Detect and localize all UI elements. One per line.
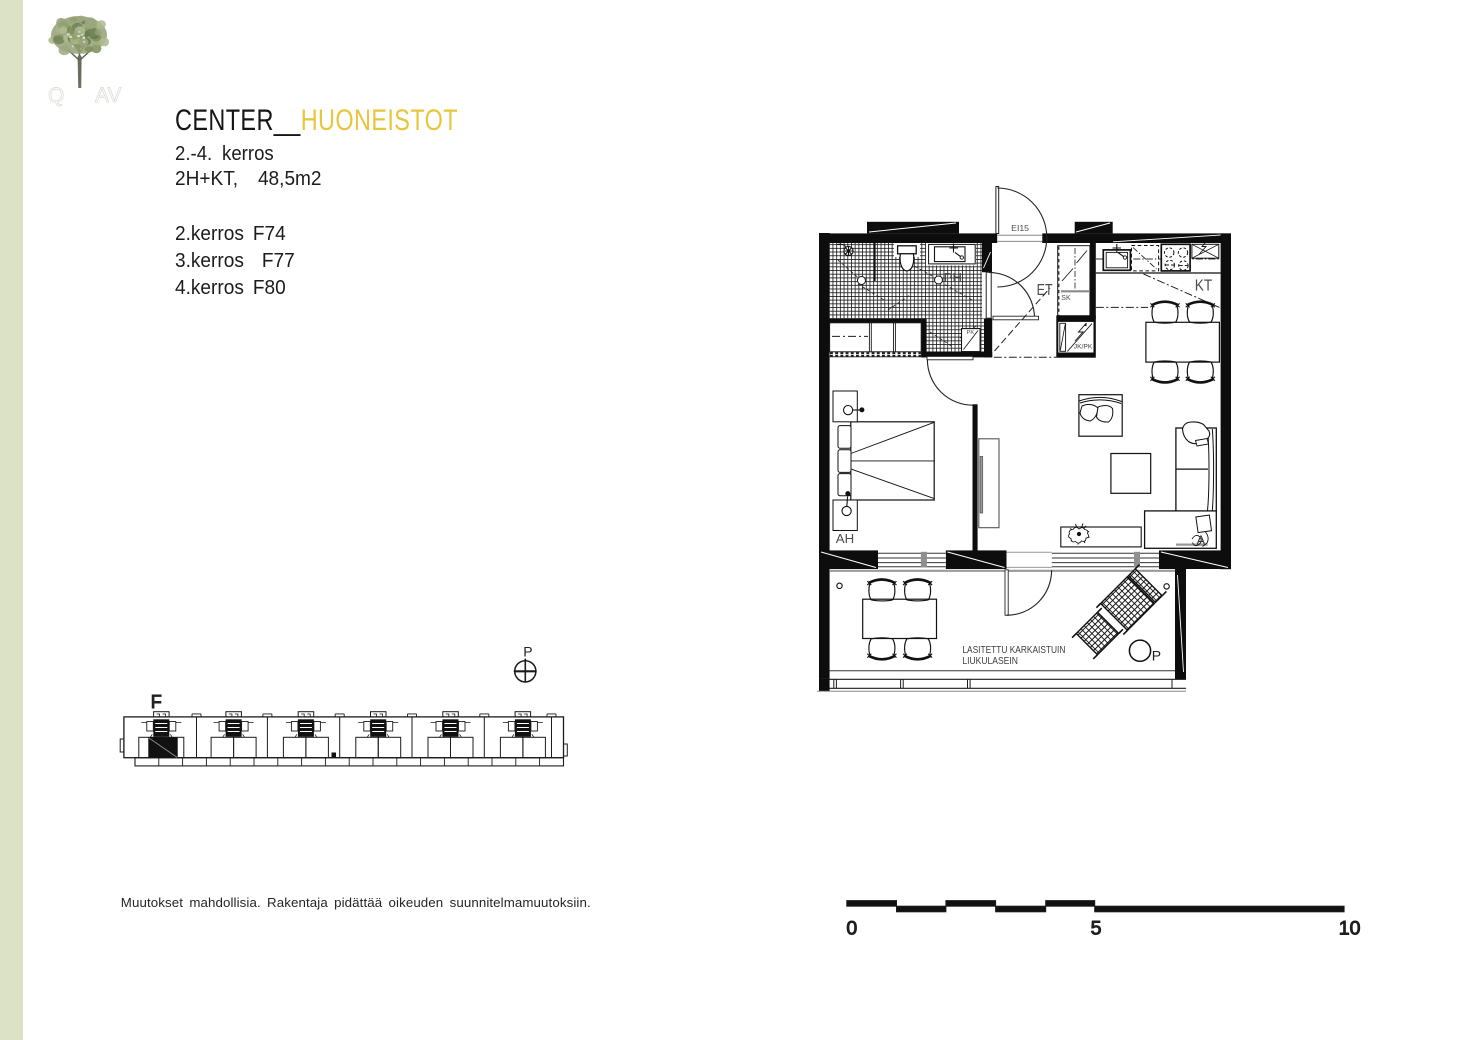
svg-text:PK: PK — [967, 330, 975, 336]
svg-text:LASITETTU KARKAISTUIN: LASITETTU KARKAISTUIN — [962, 645, 1065, 656]
svg-text:PH: PH — [944, 271, 962, 284]
svg-text:AH: AH — [836, 531, 854, 546]
svg-text:10: 10 — [1339, 917, 1361, 939]
svg-text:LIUKULASEIN: LIUKULASEIN — [962, 656, 1018, 667]
svg-text:P: P — [1152, 648, 1161, 664]
svg-text:F: F — [151, 692, 162, 712]
svg-text:A: A — [1197, 533, 1206, 548]
svg-text:EI15: EI15 — [1011, 223, 1029, 233]
svg-text:ET: ET — [1037, 282, 1053, 299]
svg-text:SK: SK — [1061, 295, 1071, 302]
svg-text:5: 5 — [1091, 917, 1102, 939]
svg-text:JK/PK: JK/PK — [1074, 343, 1093, 350]
svg-text:KT: KT — [1195, 277, 1213, 294]
svg-text:0: 0 — [846, 917, 857, 939]
svg-text:P: P — [523, 644, 532, 660]
